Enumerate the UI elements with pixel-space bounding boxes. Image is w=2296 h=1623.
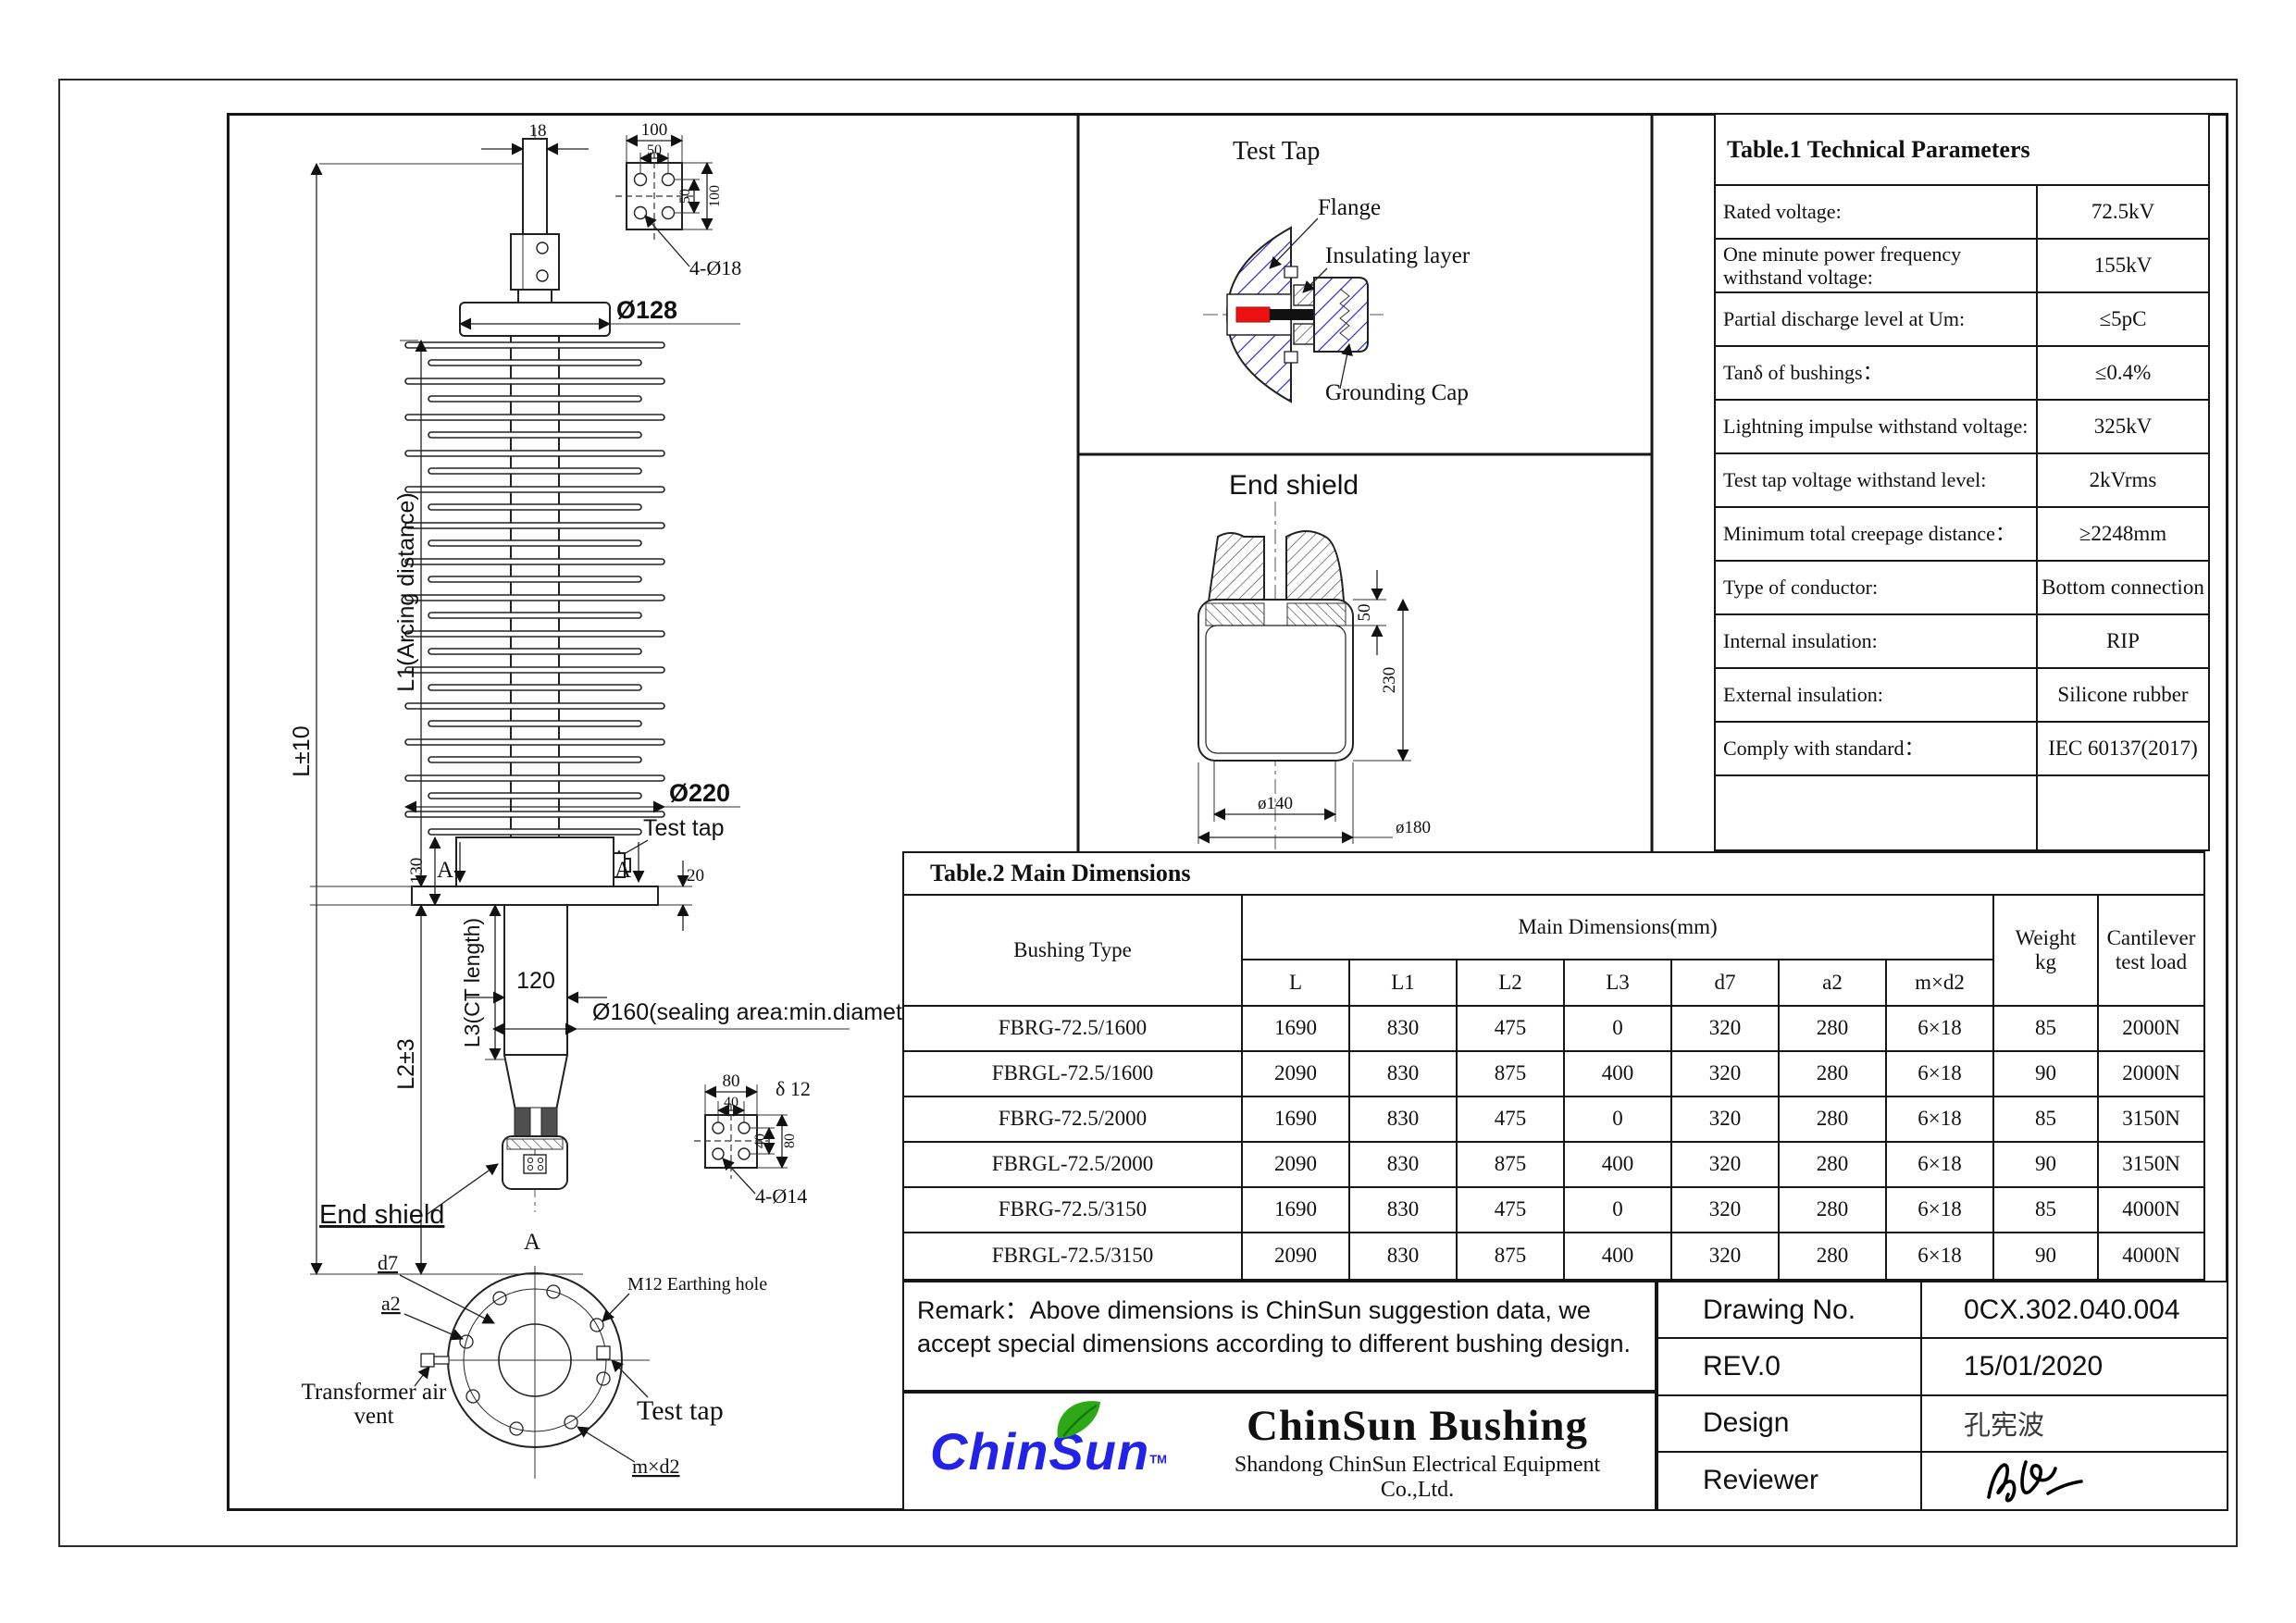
remark-note: Remark：Above dimensions is ChinSun sugge… [902, 1281, 1657, 1392]
detail-label-4xd14: 4-Ø14 [755, 1184, 807, 1208]
col-header-a2: a2 [1780, 960, 1887, 1007]
table-row: Rated voltage:72.5kV [1716, 186, 2208, 240]
end-shield-dim-140: ø140 [1258, 794, 1293, 813]
detail-dim-80v: 80 [782, 1134, 798, 1148]
section-mark-a: A [524, 1230, 540, 1255]
table-row: Minimum total creepage distance：≥2248mm [1716, 508, 2208, 562]
dim-dia128: Ø128 [616, 296, 677, 324]
detail-dim-50: 50 [647, 142, 662, 158]
panel-divider-lines [1078, 116, 1652, 851]
design-label: Design [1658, 1396, 1922, 1453]
table2-title: Table.2 Main Dimensions [904, 853, 2203, 896]
company-brand-name: ChinSun Bushing [1198, 1401, 1636, 1451]
section-label-mxd2: m×d2 [632, 1455, 680, 1478]
col-header-mxd2: m×d2 [1887, 960, 1994, 1007]
dim-L2: L2±3 [393, 1038, 419, 1089]
dim-L: L±10 [289, 725, 315, 776]
table2-main-dimensions: Table.2 Main Dimensions Bushing Type Mai… [902, 851, 2205, 1281]
section-arrow-a-right: A [614, 858, 631, 883]
chinsun-logo: ChinSunTM [930, 1421, 1198, 1481]
col-header-bushing-type: Bushing Type [904, 896, 1243, 1007]
leaf-icon [1049, 1395, 1108, 1442]
table-row: One minute power frequency withstand vol… [1716, 240, 2208, 293]
drawing-no-label: Drawing No. [1658, 1282, 1922, 1339]
end-shield-label: End shield [319, 1200, 444, 1230]
col-header-L: L [1243, 960, 1350, 1007]
table-row: Lightning impulse withstand voltage:325k… [1716, 401, 2208, 454]
test-tap-label: Test tap [643, 815, 725, 841]
detail-dim-thickness: δ 12 [776, 1077, 811, 1100]
detail-dim-100v: 100 [707, 185, 723, 207]
detail-dim-40v: 40 [752, 1134, 768, 1148]
detail-dim-40: 40 [724, 1095, 738, 1110]
section-arrow-a-left: A [437, 858, 453, 883]
section-label-earthing: M12 Earthing hole [627, 1274, 767, 1295]
company-full-name: Shandong ChinSun Electrical Equipment Co… [1198, 1453, 1636, 1503]
label-grounding-cap: Grounding Cap [1325, 380, 1469, 405]
table-row: Type of conductor:Bottom connection [1716, 562, 2208, 615]
dim-120: 120 [516, 968, 555, 994]
dim-L1: L1(Arcing distance) [393, 492, 419, 691]
reviewer-label: Reviewer [1658, 1453, 1922, 1509]
bushing-elevation-view: 18 Ø128 Ø220 [289, 121, 930, 1274]
table-row: Partial discharge level at Um:≤5pC [1716, 293, 2208, 347]
table-row-empty [1716, 776, 2208, 849]
dim-dia160: Ø160(sealing area:min.diameter) [592, 999, 930, 1025]
col-group-main-dimensions: Main Dimensions(mm) [1243, 896, 1994, 960]
reviewer-cell [1922, 1453, 2227, 1509]
reviewer-signature [1978, 1453, 2098, 1508]
section-label-air-vent-2: vent [354, 1404, 393, 1429]
dim-18: 18 [529, 121, 547, 141]
table-row: Tanδ of bushings：≤0.4% [1716, 347, 2208, 401]
table1-technical-parameters: Table.1 Technical Parameters Rated volta… [1714, 113, 2210, 851]
detail-dim-80: 80 [723, 1072, 740, 1091]
end-shield-dim-50: 50 [1355, 604, 1374, 622]
drawing-sheet: 18 Ø128 Ø220 [0, 0, 2296, 1623]
col-header-L3: L3 [1565, 960, 1672, 1007]
designer-name: 孔宪波 [1922, 1396, 2227, 1453]
section-label-a2: a2 [381, 1292, 401, 1315]
test-tap-detail-view: Test Tap Flange Insulating layer Groundi… [1203, 137, 1471, 405]
detail-dim-100: 100 [641, 120, 668, 140]
table1-title: Table.1 Technical Parameters [1716, 115, 2208, 186]
col-header-L1: L1 [1350, 960, 1458, 1007]
end-shield-view-title: End shield [1229, 470, 1359, 501]
col-header-weight: Weight kg [1994, 896, 2099, 1007]
rev-label: REV.0 [1658, 1339, 1922, 1395]
col-header-L2: L2 [1458, 960, 1565, 1007]
bottom-bolt-pattern-detail: 80 40 δ 12 40 80 4-Ø14 [694, 1072, 811, 1208]
label-insulating-layer: Insulating layer [1325, 243, 1471, 268]
brand-band: ChinSunTM ChinSun Bushing Shandong ChinS… [902, 1392, 1657, 1511]
dim-130: 130 [407, 858, 427, 885]
detail-label-4xd18: 4-Ø18 [689, 256, 741, 279]
col-header-d7: d7 [1672, 960, 1780, 1007]
table-row: Internal insulation:RIP [1716, 615, 2208, 669]
table-row: Comply with standard：IEC 60137(2017) [1716, 723, 2208, 776]
section-label-d7: d7 [378, 1251, 398, 1274]
label-flange: Flange [1318, 195, 1381, 220]
col-header-cantilever: Cantilever test load [2099, 896, 2203, 1007]
dim-dia220: Ø220 [669, 779, 730, 807]
end-shield-dim-180: ø180 [1396, 818, 1431, 837]
dim-20: 20 [687, 866, 704, 886]
dim-L3: L3(CT length) [460, 918, 484, 1047]
table-row: External insulation:Silicone rubber [1716, 669, 2208, 723]
end-shield-dim-230: 230 [1380, 667, 1399, 694]
end-shield-detail-view: End shield 50 230 ø140 ø180 [1198, 470, 1431, 849]
title-block: Drawing No. 0CX.302.040.004 REV.0 15/01/… [1657, 1281, 2228, 1511]
flange-section-view: d7 a2 Transformer air vent M12 Earthing … [302, 1251, 768, 1479]
drawing-no-value: 0CX.302.040.004 [1922, 1282, 2227, 1339]
detail-dim-50v: 50 [677, 189, 693, 204]
rev-date-value: 15/01/2020 [1922, 1339, 2227, 1395]
top-bolt-pattern-detail: 100 50 50 100 4-Ø18 [615, 120, 741, 279]
section-label-test-tap: Test tap [637, 1395, 724, 1426]
test-tap-view-title: Test Tap [1233, 137, 1320, 166]
table-row: Test tap voltage withstand level:2kVrms [1716, 454, 2208, 508]
section-label-air-vent-1: Transformer air [302, 1380, 447, 1405]
